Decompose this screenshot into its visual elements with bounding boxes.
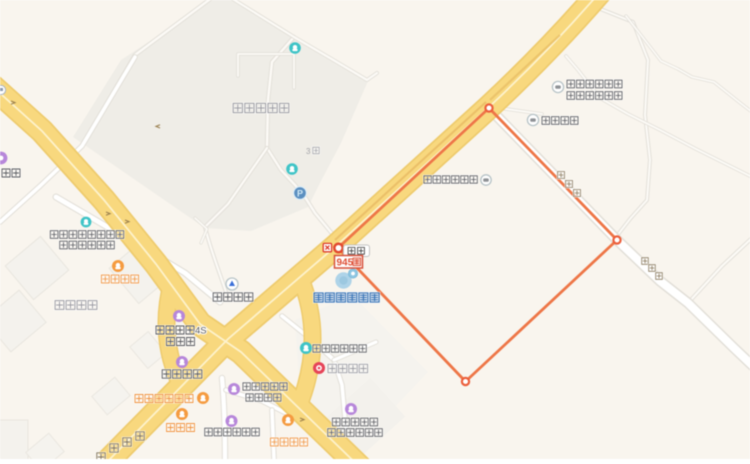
svg-text:4S: 4S [195, 326, 207, 337]
svg-text:P: P [297, 188, 303, 198]
svg-text:945: 945 [337, 257, 354, 268]
svg-text:3: 3 [306, 147, 311, 156]
